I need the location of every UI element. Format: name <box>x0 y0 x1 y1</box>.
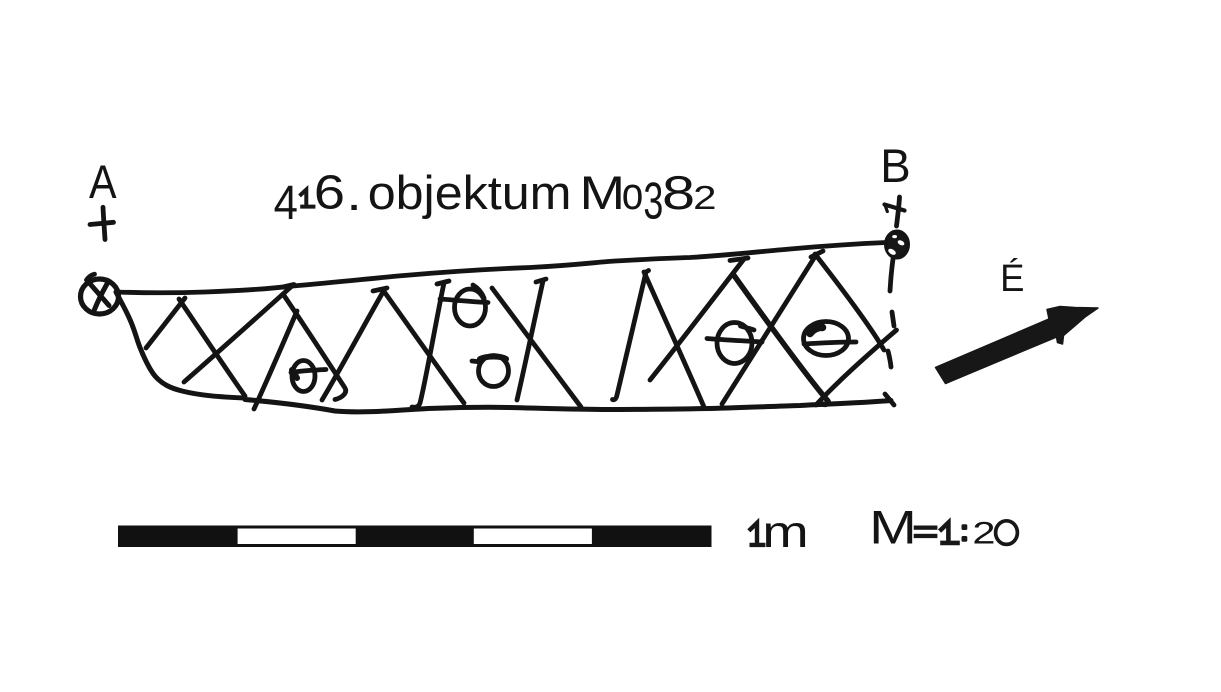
svg-text:8: 8 <box>662 167 695 220</box>
svg-text:3: 3 <box>643 173 663 230</box>
svg-text:.: . <box>346 168 362 221</box>
svg-text:6: 6 <box>314 165 345 219</box>
svg-text:A: A <box>89 156 117 208</box>
svg-text:2: 2 <box>693 180 716 217</box>
svg-text:o: o <box>622 168 644 218</box>
svg-text:objektum: objektum <box>368 167 572 219</box>
svg-text:m: m <box>762 507 808 557</box>
svg-text:É: É <box>1000 256 1024 299</box>
svg-text:4: 4 <box>274 175 298 229</box>
svg-text:M: M <box>580 167 626 220</box>
svg-text:B: B <box>880 139 910 192</box>
svg-text:2: 2 <box>972 516 995 551</box>
svg-text:M: M <box>869 502 917 554</box>
